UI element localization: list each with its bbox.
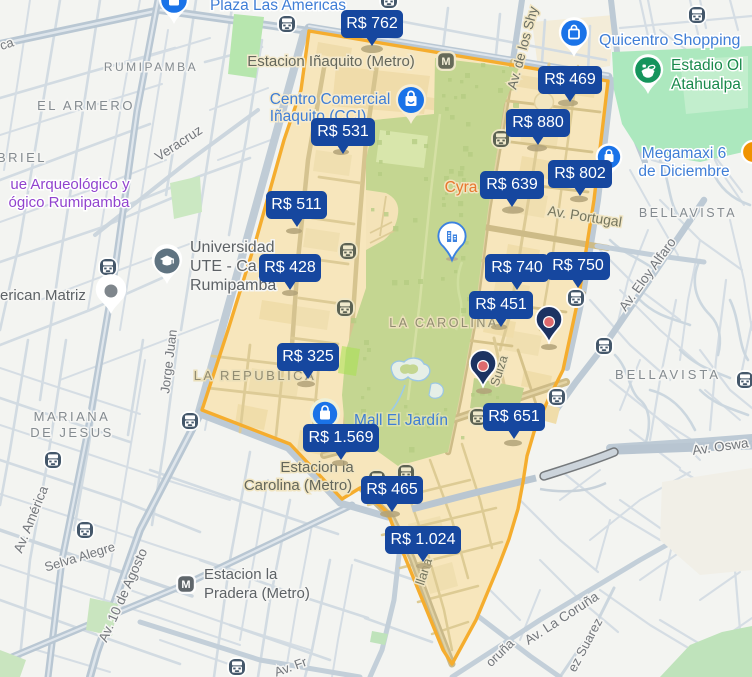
svg-text:Carolina (Metro): Carolina (Metro) xyxy=(244,477,352,494)
svg-text:Plaza Las Americas: Plaza Las Americas xyxy=(210,0,346,14)
svg-text:EL ARMERO: EL ARMERO xyxy=(37,98,135,113)
svg-text:MARIANA: MARIANA xyxy=(34,409,111,424)
svg-text:Estacion la: Estacion la xyxy=(204,566,278,583)
svg-text:Estadio Ol: Estadio Ol xyxy=(671,57,743,74)
svg-text:ógico Rumipamba: ógico Rumipamba xyxy=(9,194,131,211)
svg-text:Cyra: Cyra xyxy=(445,179,478,196)
svg-text:BELLAVISTA: BELLAVISTA xyxy=(615,367,721,382)
svg-text:DE JESUS: DE JESUS xyxy=(30,425,114,440)
svg-text:Megamaxi 6: Megamaxi 6 xyxy=(642,145,726,162)
svg-text:ue Arqueológico y: ue Arqueológico y xyxy=(10,176,130,193)
svg-text:Atahualpa: Atahualpa xyxy=(671,76,741,93)
svg-text:RUMIPAMBA: RUMIPAMBA xyxy=(104,60,198,74)
svg-text:de Diciembre: de Diciembre xyxy=(638,163,729,180)
svg-text:Pradera (Metro): Pradera (Metro) xyxy=(204,585,310,602)
svg-text:erican Matriz: erican Matriz xyxy=(0,287,86,304)
svg-text:BELLAVISTA: BELLAVISTA xyxy=(639,206,737,220)
svg-text:BRIEL: BRIEL xyxy=(0,150,47,165)
svg-text:Quicentro Shopping: Quicentro Shopping xyxy=(599,32,740,49)
svg-text:UTE - Ca: UTE - Ca xyxy=(190,258,257,275)
svg-text:Estacion Iñaquito (Metro): Estacion Iñaquito (Metro) xyxy=(247,53,415,70)
svg-text:Centro Comercial: Centro Comercial xyxy=(270,91,391,108)
